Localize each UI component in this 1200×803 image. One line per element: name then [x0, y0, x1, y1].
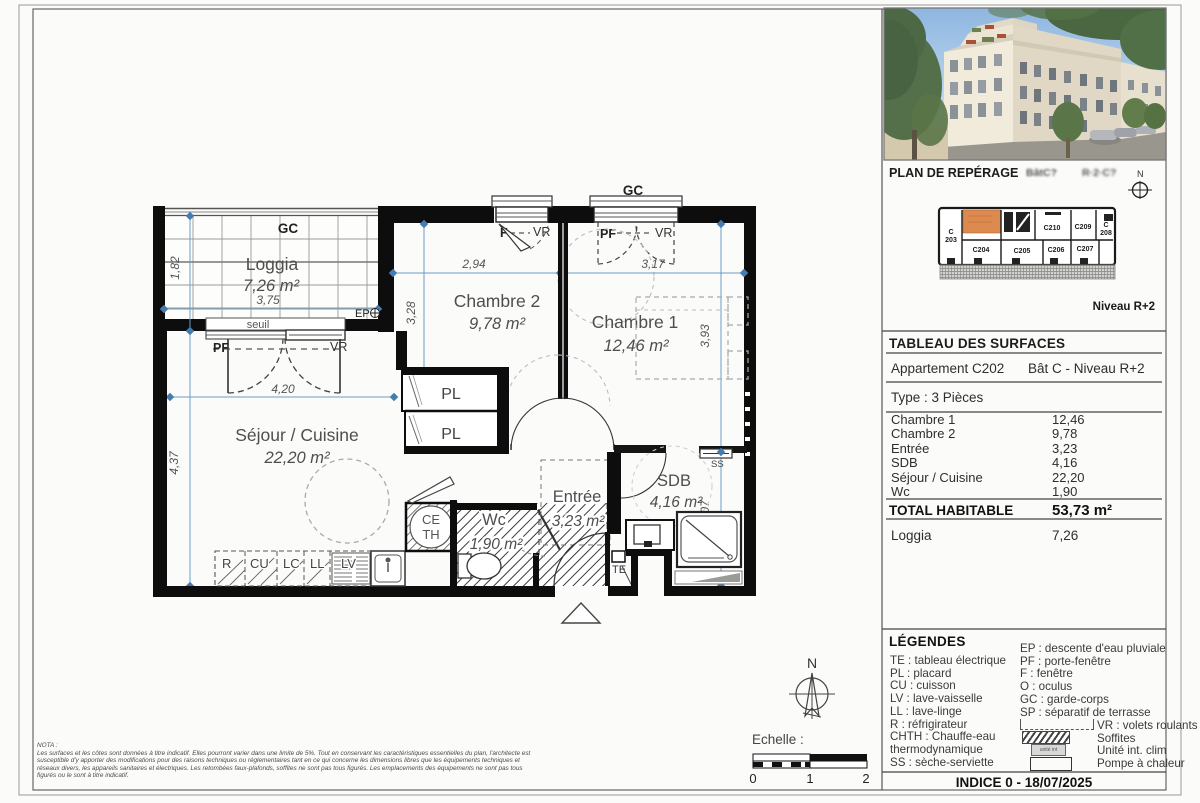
svg-text:0: 0 — [749, 771, 756, 786]
svg-text:R·2·C?: R·2·C? — [1082, 167, 1116, 179]
svg-text:3,93: 3,93 — [698, 324, 712, 348]
svg-text:Chambre 2: Chambre 2 — [454, 291, 541, 311]
svg-text:CE: CE — [422, 512, 440, 527]
svg-text:9,78 m²: 9,78 m² — [469, 315, 525, 333]
svg-text:VR: VR — [655, 226, 672, 240]
svg-text:N: N — [807, 655, 817, 671]
svg-text:EP: EP — [355, 308, 370, 320]
svg-text:C: C — [1103, 222, 1108, 229]
svg-text:3,75: 3,75 — [256, 293, 280, 307]
svg-text:C204: C204 — [973, 247, 990, 254]
svg-text:PL: PL — [441, 386, 461, 403]
svg-text:TH: TH — [422, 527, 439, 542]
svg-text:2,94: 2,94 — [461, 257, 486, 271]
svg-text:SDB: SDB — [657, 472, 691, 490]
svg-text:22,20 m²: 22,20 m² — [263, 449, 330, 467]
svg-text:CU: CU — [250, 556, 269, 571]
svg-text:208: 208 — [1100, 230, 1112, 237]
svg-text:1,82: 1,82 — [168, 256, 182, 280]
svg-text:LC: LC — [283, 556, 300, 571]
svg-text:4,37: 4,37 — [167, 450, 181, 475]
svg-text:Entrée: Entrée — [553, 488, 602, 506]
svg-text:2: 2 — [862, 771, 869, 786]
svg-text:3,28: 3,28 — [404, 301, 418, 325]
svg-text:VR: VR — [330, 340, 347, 354]
svg-text:Niveau R+2: Niveau R+2 — [1093, 301, 1155, 313]
svg-text:LV: LV — [341, 556, 356, 571]
svg-text:Wc: Wc — [482, 511, 506, 529]
svg-text:GC: GC — [623, 183, 644, 198]
svg-text:C210: C210 — [1044, 225, 1061, 232]
svg-text:SS: SS — [711, 459, 724, 470]
svg-text:C: C — [948, 229, 953, 236]
svg-text:PLAN DE REPÉRAGE: PLAN DE REPÉRAGE — [889, 165, 1018, 180]
svg-text:Séjour / Cuisine: Séjour / Cuisine — [235, 425, 359, 445]
svg-text:3,23 m²: 3,23 m² — [552, 513, 605, 530]
svg-text:3,17: 3,17 — [641, 257, 666, 271]
svg-text:1,90 m²: 1,90 m² — [470, 536, 523, 553]
svg-text:Loggia: Loggia — [246, 254, 299, 274]
svg-text:C205: C205 — [1014, 248, 1031, 255]
svg-text:PF: PF — [213, 341, 229, 355]
svg-text:GC: GC — [278, 221, 299, 236]
svg-text:C209: C209 — [1075, 224, 1092, 231]
svg-text:BâtC?: BâtC? — [1026, 167, 1057, 179]
svg-text:N: N — [1137, 169, 1144, 179]
svg-text:1: 1 — [806, 771, 813, 786]
svg-text:Echelle :: Echelle : — [752, 732, 804, 747]
svg-text:203: 203 — [945, 237, 957, 244]
svg-text:seuil: seuil — [247, 319, 270, 331]
svg-text:R: R — [222, 556, 231, 571]
svg-text:4,16 m²: 4,16 m² — [650, 494, 703, 511]
svg-text:LL: LL — [310, 556, 324, 571]
svg-text:C206: C206 — [1048, 247, 1065, 254]
svg-text:PL: PL — [441, 426, 461, 443]
svg-text:4,20: 4,20 — [271, 382, 295, 396]
svg-text:Chambre 1: Chambre 1 — [592, 312, 679, 332]
svg-text:C207: C207 — [1077, 246, 1094, 253]
